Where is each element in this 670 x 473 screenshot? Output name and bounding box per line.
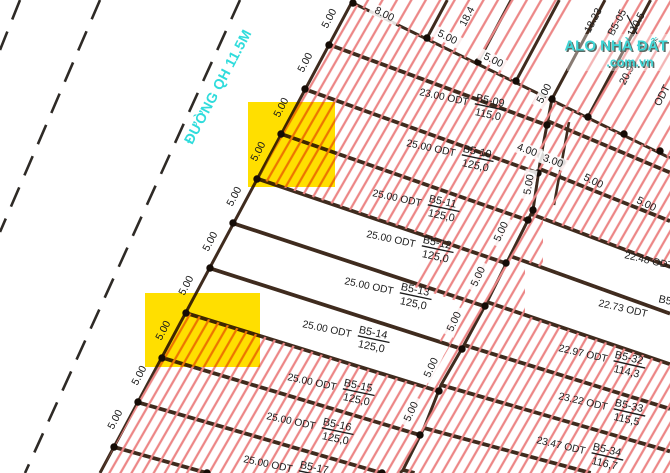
svg-text:ALO NHÀ ĐẤT: ALO NHÀ ĐẤT: [564, 38, 667, 55]
svg-text:.com.vn: .com.vn: [606, 56, 653, 70]
